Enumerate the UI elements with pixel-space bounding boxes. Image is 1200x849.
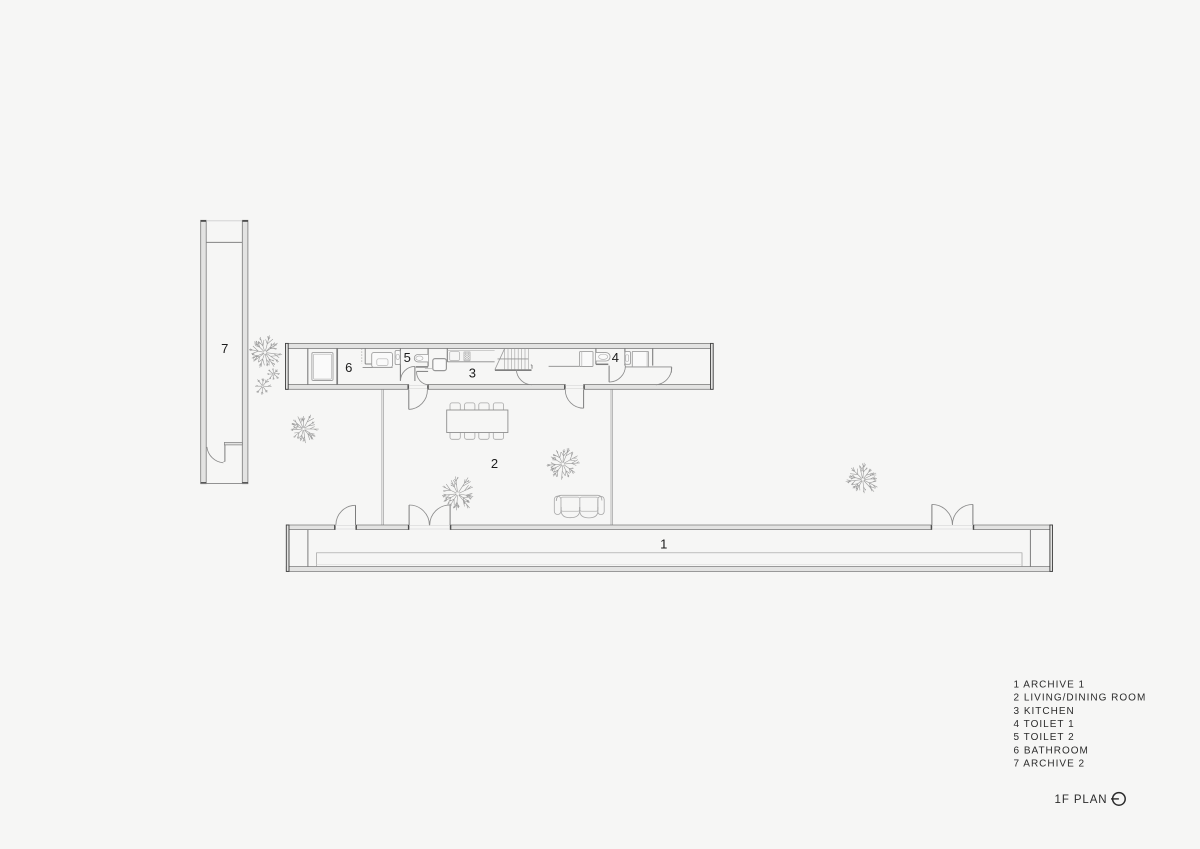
svg-text:6: 6	[345, 360, 352, 375]
svg-text:6 BATHROOM: 6 BATHROOM	[1014, 745, 1089, 756]
svg-text:5: 5	[404, 350, 411, 365]
svg-text:1F PLAN: 1F PLAN	[1055, 794, 1108, 806]
svg-text:1: 1	[660, 536, 667, 551]
svg-text:5 TOILET 2: 5 TOILET 2	[1014, 732, 1075, 743]
svg-text:4 TOILET 1: 4 TOILET 1	[1014, 719, 1075, 730]
svg-text:4: 4	[612, 350, 619, 365]
svg-text:2: 2	[491, 456, 498, 471]
svg-text:7: 7	[221, 341, 228, 356]
svg-text:3 KITCHEN: 3 KITCHEN	[1014, 706, 1075, 717]
svg-text:2 LIVING/DINING ROOM: 2 LIVING/DINING ROOM	[1014, 693, 1147, 704]
svg-text:3: 3	[469, 366, 476, 381]
svg-text:1 ARCHIVE 1: 1 ARCHIVE 1	[1014, 679, 1086, 690]
svg-text:7 ARCHIVE 2: 7 ARCHIVE 2	[1014, 759, 1086, 770]
